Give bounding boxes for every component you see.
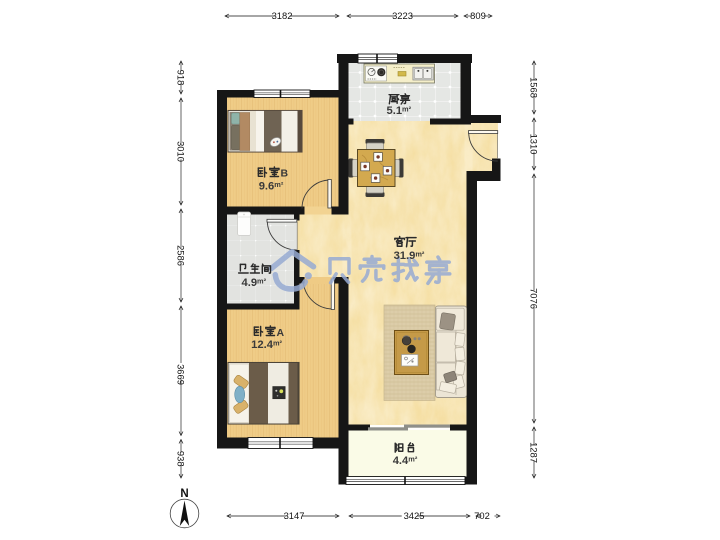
svg-text:3669: 3669 (176, 364, 187, 385)
svg-text:B: B (281, 168, 289, 180)
svg-text:3147: 3147 (284, 510, 305, 521)
svg-text:2586: 2586 (176, 245, 187, 266)
svg-text:3182: 3182 (272, 10, 293, 21)
svg-text:1287: 1287 (529, 442, 540, 463)
svg-text:3010: 3010 (176, 141, 187, 162)
svg-text:N: N (180, 488, 188, 500)
svg-text:3425: 3425 (404, 510, 425, 521)
svg-text:A: A (277, 327, 285, 339)
svg-text:918: 918 (176, 70, 187, 86)
svg-text:3223: 3223 (392, 10, 413, 21)
svg-text:7076: 7076 (529, 288, 540, 309)
svg-text:938: 938 (176, 451, 187, 467)
svg-text:702: 702 (474, 510, 490, 521)
svg-text:1568: 1568 (529, 77, 540, 98)
svg-text:809: 809 (470, 10, 486, 21)
svg-text:1310: 1310 (529, 134, 540, 155)
